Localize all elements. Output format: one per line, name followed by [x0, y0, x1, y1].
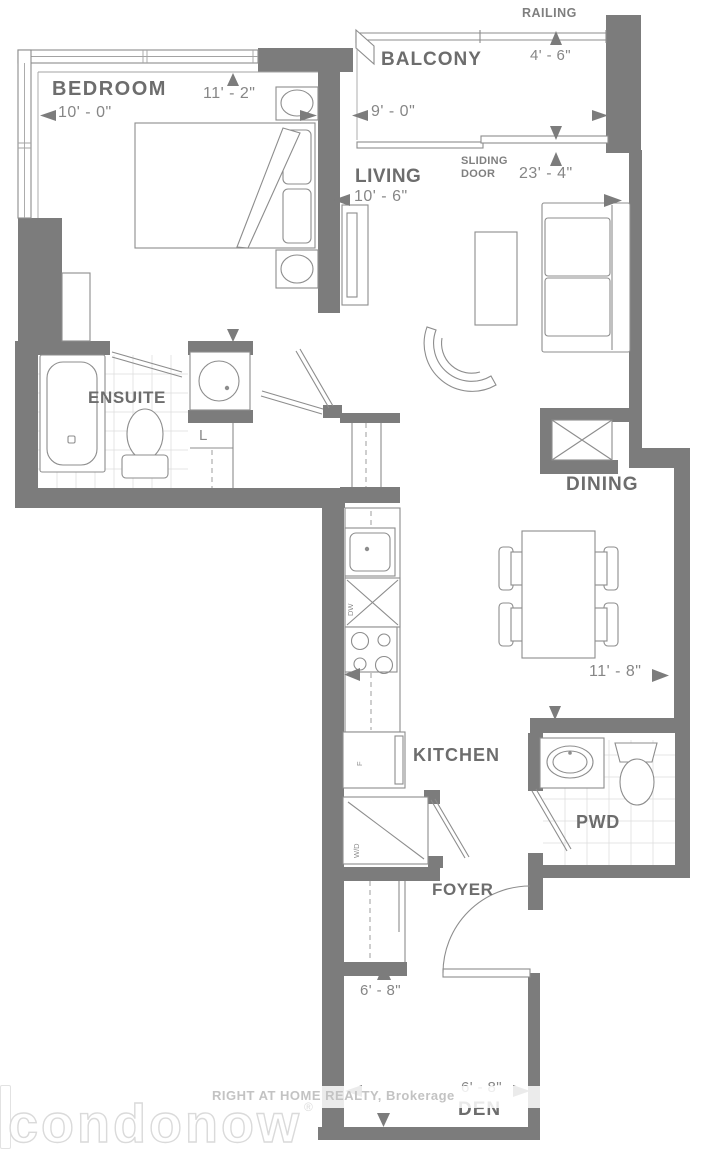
stove: [345, 627, 397, 674]
living-label: LIVING: [355, 166, 421, 188]
hall-door: [261, 391, 323, 414]
living-length-dim: 23' - 4": [519, 165, 573, 183]
bedroom-depth-dim: 11' - 2": [203, 85, 255, 103]
dining-label: DINING: [566, 474, 639, 496]
ensuite-label: ENSUITE: [88, 388, 166, 408]
bathtub: [40, 355, 105, 472]
railing-label: RAILING: [522, 6, 577, 20]
coffee-table: [475, 232, 517, 325]
vanity-sink-pwd: [540, 738, 604, 788]
sliding-door-label: SLIDING DOOR: [461, 155, 508, 180]
vanity-sink-ensuite: [190, 352, 250, 410]
laundry-door: [431, 799, 469, 858]
coat-closet: [352, 423, 381, 487]
sofa: [542, 203, 630, 352]
tv-unit: [342, 205, 368, 305]
ensuite-door: [112, 352, 182, 377]
nightstand-bottom: [276, 250, 318, 288]
linen-closet: [190, 423, 233, 488]
foyer-closet: [370, 881, 405, 962]
shaft-closet: [552, 420, 612, 460]
toilet-pwd: [615, 743, 657, 805]
fridge-label: F: [355, 761, 364, 766]
condonow-watermark: condonow: [8, 1093, 302, 1155]
sliding-door: [357, 136, 608, 148]
fridge: [343, 732, 405, 788]
dishwasher-label: DW: [346, 604, 355, 617]
living-width-dim: 10' - 6": [354, 188, 408, 206]
foyer-label: FOYER: [432, 880, 494, 900]
balcony-label: BALCONY: [381, 49, 482, 71]
balcony-width-dim: 9' - 0": [371, 103, 415, 121]
bed: [135, 123, 315, 248]
washer-dryer-label: W/D: [352, 843, 361, 858]
balcony-depth-dim: 4' - 6": [530, 47, 571, 64]
dining-set: [499, 531, 618, 658]
foyer-closet-dim: 6' - 8": [360, 982, 401, 999]
bedroom-label: BEDROOM: [52, 78, 167, 101]
floor-plan: BEDROOM 10' - 0" 11' - 2" RAILING 4' - 6…: [0, 0, 712, 1156]
wardrobe: [62, 273, 90, 341]
linen-closet-label: L: [199, 427, 207, 444]
kitchen-label: KITCHEN: [413, 745, 500, 766]
pwd-label: PWD: [576, 812, 620, 833]
dining-width-dim: 11' - 8": [589, 663, 641, 681]
accent-chair: [424, 327, 496, 391]
bedroom-width-dim: 10' - 0": [58, 104, 112, 122]
bedroom-door: [296, 349, 333, 408]
registered-mark: ®: [304, 1100, 313, 1114]
kitchen-sink: [345, 528, 395, 576]
toilet-ensuite: [122, 409, 168, 478]
